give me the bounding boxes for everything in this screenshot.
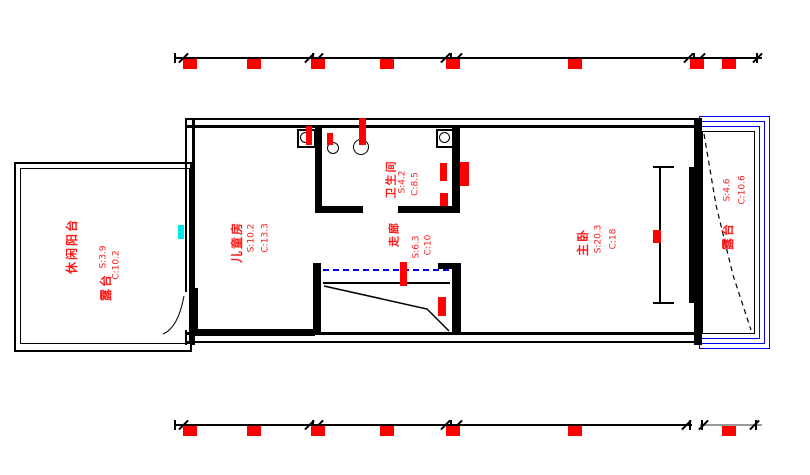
wall-segment [398,206,460,213]
wall-segment [694,118,702,345]
redacted-dimension-marker [568,59,582,69]
room-label-children: 儿童房 [231,221,243,263]
room-circ-children: C:13.3 [262,223,271,252]
wall-segment [185,118,187,292]
room-label-corridor: 走廊 [389,221,400,247]
electrical-marker [653,230,661,243]
wall-segment [315,206,363,213]
room-area-bathroom: S:4.2 [399,170,408,193]
room-circ-leisure-balcony: C:10.2 [113,250,122,279]
wall-segment [452,263,461,333]
wall-segment [689,167,694,303]
redacted-dimension-marker [311,426,325,436]
redacted-dimension-marker [446,59,460,69]
room-label-terrace: 露台 [722,222,734,250]
redacted-dimension-marker [380,59,394,69]
electrical-marker [460,162,469,186]
redacted-dimension-marker [722,59,736,69]
wall-segment [185,118,701,120]
room-area-master-bedroom: S:20.3 [595,225,604,254]
redacted-dimension-marker [722,426,736,436]
room-label-bathroom: 卫生间 [386,160,397,199]
room-area-leisure-balcony: S:3.9 [100,245,109,268]
redacted-dimension-marker [690,59,704,69]
electrical-marker [438,297,446,316]
dimension-extension-tick [174,420,176,430]
stair-landing-line [323,282,450,284]
dimension-line [175,57,762,59]
wall-segment [190,288,198,333]
wall-segment [315,126,322,213]
room-label-master-bedroom: 主卧 [577,228,589,256]
stair-break-line [324,286,449,331]
wall-segment [653,166,674,168]
redacted-dimension-marker [183,59,197,69]
electrical-marker [306,126,312,145]
wall-segment [313,263,321,333]
dimension-extension-tick [174,53,176,63]
wall-segment [452,126,460,213]
room-circ-terrace: C:10.6 [739,175,748,204]
electrical-marker [327,133,333,145]
wall-segment [653,302,674,304]
redacted-dimension-marker [311,59,325,69]
room-circ-bathroom: C:8.5 [412,172,421,196]
room-label-leisure-balcony: 休闲阳台 [66,218,78,274]
room-area-terrace: S:4.6 [724,178,733,201]
redacted-dimension-marker [446,426,460,436]
balcony-door-swing-arc [163,296,184,334]
room-area-children: S:10.2 [248,224,257,253]
redacted-dimension-marker [247,59,261,69]
room-area-corridor: S:6.3 [413,235,422,258]
room-circ-master-bedroom: C:18 [610,229,619,250]
wall-opening-cyan-marker [178,225,184,239]
redacted-dimension-marker [183,426,197,436]
corridor-guide-dashed-line [323,269,449,271]
redacted-dimension-marker [568,426,582,436]
redacted-dimension-marker [247,426,261,436]
electrical-marker [440,163,447,181]
electrical-marker [400,262,407,286]
electrical-marker [359,118,366,145]
electrical-marker [440,193,448,206]
wall-segment [438,263,452,269]
wall-segment [185,125,701,128]
light-fixture-circle-bathroom [439,132,450,143]
wall-segment [190,329,315,336]
redacted-dimension-marker [380,426,394,436]
floor-plan-canvas: 休闲阳台 露台 S:3.9 C:10.2 儿童房 S:10.2 C:13.3 卫… [0,0,810,475]
room-label-leisure-balcony-alt: 露台 [100,273,112,301]
room-circ-corridor: C:10 [425,235,434,256]
wall-segment [185,341,701,343]
